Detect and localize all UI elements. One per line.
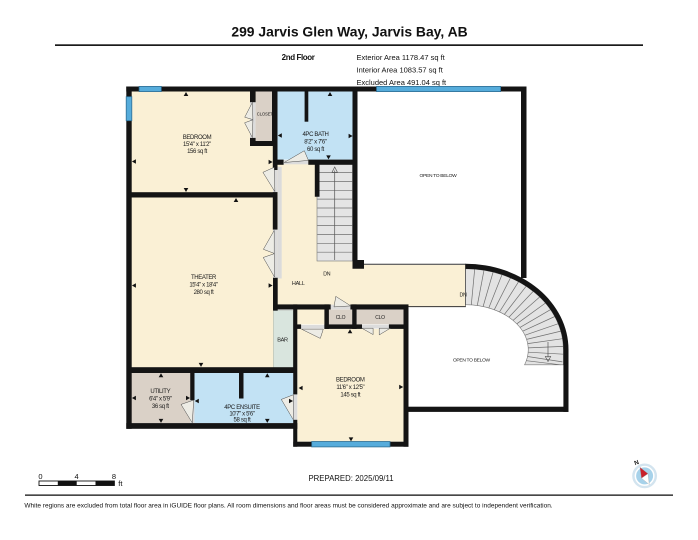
svg-text:10'7" x 5'6": 10'7" x 5'6" [229,412,255,418]
svg-text:CLO: CLO [336,315,346,321]
svg-text:60 sq ft: 60 sq ft [307,147,325,153]
svg-text:145 sq ft: 145 sq ft [340,393,361,399]
svg-text:58 sq ft: 58 sq ft [234,418,252,424]
svg-text:156 sq ft: 156 sq ft [187,149,208,155]
svg-text:DN: DN [323,271,331,277]
svg-text:THEATER: THEATER [191,275,217,281]
svg-text:8'2" x 7'6": 8'2" x 7'6" [304,140,327,146]
svg-text:DN: DN [459,292,467,298]
svg-text:HALL: HALL [292,281,305,287]
svg-text:OPEN TO BELOW: OPEN TO BELOW [453,358,491,364]
svg-text:Excluded Area 491.04 sq ft: Excluded Area 491.04 sq ft [357,78,448,87]
svg-text:Exterior Area 1178.47 sq ft: Exterior Area 1178.47 sq ft [357,53,446,62]
svg-text:11'6" x 12'5": 11'6" x 12'5" [336,385,364,391]
svg-text:36 sq ft: 36 sq ft [152,404,170,410]
svg-text:2nd Floor: 2nd Floor [282,53,315,62]
svg-text:UTILITY: UTILITY [150,389,170,395]
svg-text:15'4" x 18'4": 15'4" x 18'4" [189,283,218,289]
svg-text:Interior Area 1083.57 sq ft: Interior Area 1083.57 sq ft [357,66,444,75]
svg-text:280 sq ft: 280 sq ft [194,290,215,296]
svg-text:BEDROOM: BEDROOM [336,378,365,384]
svg-text:299 Jarvis Glen Way, Jarvis Ba: 299 Jarvis Glen Way, Jarvis Bay, AB [231,24,467,40]
svg-text:ft: ft [118,479,123,488]
svg-text:6'4" x 5'9": 6'4" x 5'9" [149,397,172,403]
svg-text:4PC BATH: 4PC BATH [302,132,328,138]
svg-text:OPEN TO BELOW: OPEN TO BELOW [420,173,458,179]
svg-text:PREPARED: 2025/09/11: PREPARED: 2025/09/11 [308,474,393,483]
svg-text:BAR: BAR [277,337,288,343]
svg-text:White regions are excluded fro: White regions are excluded from total fl… [24,502,552,509]
svg-text:4: 4 [75,472,79,481]
svg-text:15'4" x 11'2": 15'4" x 11'2" [183,142,211,148]
svg-text:0: 0 [38,472,42,481]
svg-text:CLOSET: CLOSET [257,112,274,117]
svg-text:CLO: CLO [375,315,385,321]
svg-text:8: 8 [112,472,116,481]
svg-text:BEDROOM: BEDROOM [183,135,212,141]
svg-text:4PC ENSUITE: 4PC ENSUITE [224,405,260,411]
